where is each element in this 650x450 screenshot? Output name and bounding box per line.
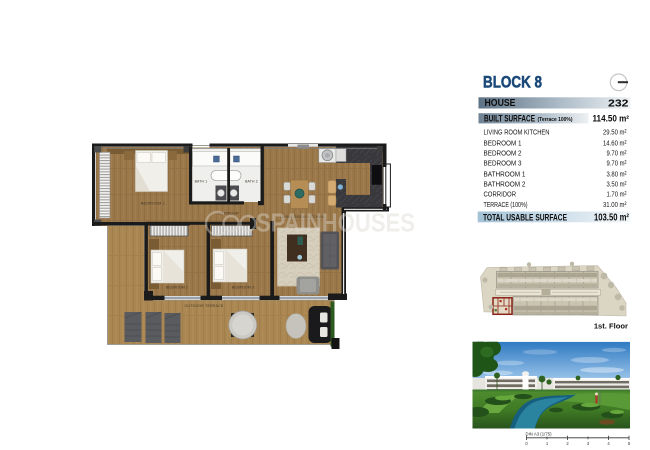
svg-text:114.50 m²: 114.50 m² xyxy=(593,114,630,124)
svg-text:BEDROOM 1: BEDROOM 1 xyxy=(141,202,165,206)
svg-text:BATH 2: BATH 2 xyxy=(245,180,258,184)
svg-text:14.60 m²: 14.60 m² xyxy=(603,139,627,148)
svg-text:LIVING ROOM KITCHEN: LIVING ROOM KITCHEN xyxy=(484,127,550,136)
svg-text:(Terrace 100%): (Terrace 100%) xyxy=(538,117,573,123)
svg-text:232: 232 xyxy=(608,98,629,109)
svg-text:TOTAL USABLE SURFACE: TOTAL USABLE SURFACE xyxy=(483,212,567,222)
svg-text:5: 5 xyxy=(628,441,631,446)
svg-text:9.70 m²: 9.70 m² xyxy=(607,159,627,168)
svg-text:29.50 m²: 29.50 m² xyxy=(603,127,627,136)
svg-text:3.50 m²: 3.50 m² xyxy=(607,180,627,189)
svg-text:103.50 m²: 103.50 m² xyxy=(594,213,630,224)
svg-text:0: 0 xyxy=(525,441,528,446)
svg-text:BLOCK 8: BLOCK 8 xyxy=(483,73,542,92)
svg-text:3.80 m²: 3.80 m² xyxy=(607,169,627,178)
svg-text:BEDROOM 1: BEDROOM 1 xyxy=(484,139,522,148)
svg-text:HOUSE: HOUSE xyxy=(485,98,516,109)
svg-text:BEDROOM 2: BEDROOM 2 xyxy=(166,286,188,290)
svg-text:1st. Floor: 1st. Floor xyxy=(594,322,628,331)
svg-text:9.70 m²: 9.70 m² xyxy=(607,149,627,158)
svg-text:BUILT SURFACE: BUILT SURFACE xyxy=(484,113,535,123)
svg-text:2: 2 xyxy=(566,441,569,446)
svg-text:1: 1 xyxy=(546,441,549,446)
svg-text:BATHROOM 1: BATHROOM 1 xyxy=(484,169,526,178)
svg-text:TERRACE (100%): TERRACE (100%) xyxy=(484,200,528,209)
svg-text:3: 3 xyxy=(587,441,590,446)
svg-text:BATH 1: BATH 1 xyxy=(195,180,208,184)
svg-text:BEDROOM 3: BEDROOM 3 xyxy=(484,159,522,168)
svg-text:1.70 m²: 1.70 m² xyxy=(607,190,627,199)
svg-text:BEDROOM 2: BEDROOM 2 xyxy=(484,149,522,158)
svg-text:BEDROOM 3: BEDROOM 3 xyxy=(232,286,254,290)
svg-text:CORRIDOR: CORRIDOR xyxy=(484,190,517,199)
svg-text:BATHROOM 2: BATHROOM 2 xyxy=(484,180,526,189)
svg-text:31.00 m²: 31.00 m² xyxy=(603,200,627,209)
svg-text:4: 4 xyxy=(607,441,610,446)
svg-text:OUTDOOR TERRACE: OUTDOOR TERRACE xyxy=(185,304,224,308)
svg-text:DIN A3 (1/75): DIN A3 (1/75) xyxy=(526,432,553,437)
svg-text:SPAINHOUSES: SPAINHOUSES xyxy=(256,210,415,238)
